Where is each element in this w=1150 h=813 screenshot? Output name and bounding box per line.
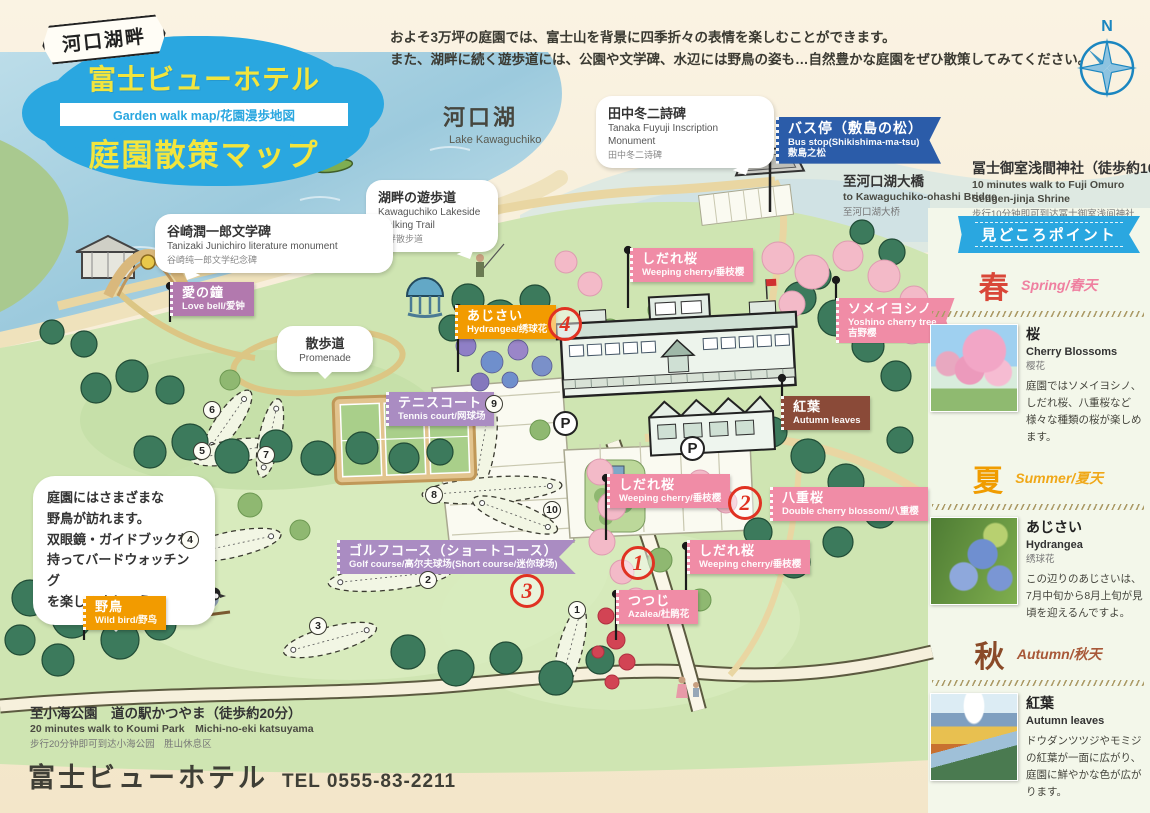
hotel-title: 富士ビューホテル [38,58,370,98]
bubble-promenade-jp: 散歩道 [289,333,361,352]
label-weeping-cherry-low-jp: しだれ桜 [699,543,801,559]
summer-photo-hydrangea [930,517,1018,605]
golf-hole-2: 2 [419,571,437,589]
note-koumi-jp: 至小海公園 道の駅かつやま（徒歩約20分） [30,702,314,722]
highlights-banner-text: 見どころポイント [975,222,1123,247]
intro-description: およそ3万坪の庭園では、富士山を背景に四季折々の表情を楽しむことができます。 ま… [390,27,1091,72]
bubble-promenade: 散歩道 Promenade [277,326,373,372]
bubble-tanaka-cn: 田中冬二诗碑 [608,148,762,161]
label-hydrangea-sub: Hydrangea/绣球花 [467,324,547,335]
season-autumn-header: 秋 Autumn/秋天 [930,632,1146,676]
label-weeping-cherry-top-jp: しだれ桜 [642,251,744,267]
label-bus-stop-en: Bus stop(Shikishima-ma-tsu) [788,137,923,148]
hotel-phone: TEL 0555-83-2211 [282,771,456,793]
label-tennis-sub: Tennis court/网球场 [398,411,485,422]
summer-heading-jp: あじさい [1026,517,1146,537]
spring-heading-en: Cherry Blossoms [1026,346,1146,358]
autumn-photo-foliage [930,693,1018,781]
label-tennis-jp: テニスコート [398,395,485,411]
season-autumn: 秋 Autumn/秋天 紅葉 Autumn leaves ドウダンツツジやモミジ… [930,632,1146,801]
lake-name: 河口湖 Lake Kawaguchiko [443,100,541,146]
highlights-banner: 見どころポイント [958,216,1140,253]
label-love-bell-jp: 愛の鐘 [182,285,245,301]
season-spring-header: 春 Spring/春天 [930,263,1146,307]
bubble-lakeside-cn: 湖畔散步道 [378,232,486,245]
label-wild-bird: 野鳥 Wild bird/野鸟 [83,596,166,630]
spot-marker-1: 1 [621,546,655,580]
autumn-body: ドウダンツツジやモミジの紅葉が一面に広がり、庭園に鮮やかな色が広がります。 [1026,733,1146,801]
intro-line-2: また、湖畔に続く遊歩道には、公園や文学碑、水辺には野鳥の姿も…自然豊かな庭園をぜ… [390,49,1091,71]
parking-icon-south: P [680,436,705,461]
label-bus-stop: バス停（敷島の松） Bus stop(Shikishima-ma-tsu) 敷島… [776,117,941,164]
label-golf-jp: ゴルフコース（ショートコース） [349,543,558,559]
label-weeping-cherry-mid-sub: Weeping cherry/垂枝樱 [619,493,721,504]
golf-hole-6: 6 [203,401,221,419]
label-double-cherry-jp: 八重桜 [782,490,919,506]
label-weeping-cherry-mid-jp: しだれ桜 [619,477,721,493]
label-golf-sub: Golf course/高尔夫球场(Short course/迷你球场) [349,559,558,570]
note-koumi-en: 20 minutes walk to Koumi Park Michi-no-e… [30,722,314,736]
golf-hole-9: 9 [485,395,503,413]
note-koumi: 至小海公園 道の駅かつやま（徒歩約20分） 20 minutes walk to… [30,702,314,750]
highlights-sidebar: 見どころポイント 春 Spring/春天 桜 Cherry Blossoms 樱… [930,216,1146,813]
label-autumn-leaves-sub: Autumn leaves [793,415,861,426]
divider [932,680,1144,686]
intro-line-1: およそ3万坪の庭園では、富士山を背景に四季折々の表情を楽しむことができます。 [390,27,1091,49]
label-weeping-cherry-mid: しだれ桜 Weeping cherry/垂枝樱 [607,474,730,508]
divider [932,311,1144,317]
summer-body: この辺りのあじさいは、7月中旬から8月上旬が見頃を迎えるんですよ。 [1026,571,1146,622]
bubble-tanizaki-monument: 谷崎潤一郎文学碑 Tanizaki Junichiro literature m… [155,214,393,273]
note-shrine-jp: 冨士御室浅間神社（徒歩約10分） [972,158,1148,178]
spring-photo-cherry-blossoms [930,324,1018,412]
season-spring: 春 Spring/春天 桜 Cherry Blossoms 樱花 庭園ではソメイ… [930,263,1146,446]
bubble-tanizaki-en: Tanizaki Junichiro literature monument [167,240,381,253]
golf-hole-8: 8 [425,486,443,504]
bubble-tanizaki-jp: 谷崎潤一郎文学碑 [167,221,381,240]
season-spring-kanji: 春 [979,272,1009,305]
garden-walk-map: 河口湖畔 富士ビューホテル Garden walk map/花園漫歩地図 庭園散… [0,0,1150,813]
season-spring-label: Spring/春天 [1021,277,1097,293]
compass-rose: N [1072,18,1142,105]
season-summer-header: 夏 Summer/夏天 [930,456,1146,500]
label-golf-course: ゴルフコース（ショートコース） Golf course/高尔夫球场(Short … [337,540,576,574]
season-summer: 夏 Summer/夏天 あじさい Hydrangea 绣球花 この辺りのあじさい… [930,456,1146,622]
autumn-heading-en: Autumn leaves [1026,715,1146,727]
map-title: 庭園散策マップ [38,130,370,175]
label-wild-bird-sub: Wild bird/野鸟 [95,615,157,626]
label-love-bell: 愛の鐘 Love bell/爱钟 [170,282,254,316]
spring-heading-jp: 桜 [1026,324,1146,344]
golf-hole-1: 1 [568,601,586,619]
label-weeping-cherry-low-sub: Weeping cherry/垂枝樱 [699,559,801,570]
note-shrine: 冨士御室浅間神社（徒歩約10分） 10 minutes walk to Fuji… [972,158,1148,220]
label-yoshino-en: Yoshino cherry tree [848,317,937,328]
label-azalea-sub: Azalea/杜鹃花 [628,609,689,620]
label-double-cherry: 八重桜 Double cherry blossom/八重樱 [770,487,928,521]
bubble-tanaka-en: Tanaka Fuyuji Inscription Monument [608,122,762,148]
parking-icon-west: P [553,411,578,436]
label-double-cherry-sub: Double cherry blossom/八重樱 [782,506,919,517]
spot-marker-2: 2 [728,486,762,520]
label-yoshino-jp: ソメイヨシノ [848,301,937,317]
season-autumn-label: Autumn/秋天 [1017,646,1102,662]
divider [932,504,1144,510]
note-shrine-en: 10 minutes walk to Fuji Omuro Sengen-jin… [972,178,1148,206]
label-tennis-court: テニスコート Tennis court/网球场 [386,392,494,426]
golf-hole-10: 10 [543,501,561,519]
spot-marker-3: 3 [510,574,544,608]
bubble-tanizaki-cn: 谷崎纯一郎文学纪念碑 [167,253,381,266]
season-summer-label: Summer/夏天 [1015,470,1103,486]
spring-body: 庭園ではソメイヨシノ、しだれ桜、八重桜など様々な種類の桜が楽しめます。 [1026,378,1146,446]
label-wild-bird-jp: 野鳥 [95,599,157,615]
label-weeping-cherry-low: しだれ桜 Weeping cherry/垂枝樱 [687,540,810,574]
label-bus-stop-cn: 敷島之松 [788,148,923,159]
lake-name-en: Lake Kawaguchiko [443,134,541,146]
bubble-promenade-en: Promenade [289,352,361,365]
golf-hole-5: 5 [193,442,211,460]
footer: 富士ビューホテル TEL 0555-83-2211 [28,756,456,795]
season-autumn-kanji: 秋 [974,641,1004,674]
label-autumn-leaves-jp: 紅葉 [793,399,861,415]
label-weeping-cherry-top-sub: Weeping cherry/垂枝樱 [642,267,744,278]
bubble-tanaka-monument: 田中冬二詩碑 Tanaka Fuyuji Inscription Monumen… [596,96,774,168]
wild-bird-note-text: 庭園にはさまざまな 野鳥が訪れます。 双眼鏡・ガイドブックを 持ってバードウォッ… [47,490,190,609]
compass-icon [1075,36,1139,100]
label-love-bell-sub: Love bell/爱钟 [182,301,245,312]
golf-hole-7: 7 [257,446,275,464]
season-summer-kanji: 夏 [973,465,1003,498]
compass-north-label: N [1072,18,1142,36]
label-weeping-cherry-top: しだれ桜 Weeping cherry/垂枝樱 [630,248,753,282]
label-autumn-leaves: 紅葉 Autumn leaves [781,396,870,430]
label-bus-stop-jp: バス停（敷島の松） [788,120,923,137]
hotel-logo: 富士ビューホテル [28,756,268,795]
golf-hole-3: 3 [309,617,327,635]
note-koumi-cn: 步行20分钟即可到达小海公园 胜山休息区 [30,736,314,750]
bubble-lakeside-en: Kawaguchiko Lakeside Walking Trail [378,206,486,232]
map-subtitle: Garden walk map/花園漫歩地図 [60,103,348,126]
summer-heading-en: Hydrangea [1026,539,1146,551]
spring-heading-cn: 樱花 [1026,358,1146,372]
golf-hole-4: 4 [181,531,199,549]
autumn-heading-jp: 紅葉 [1026,693,1146,713]
label-azalea: つつじ Azalea/杜鹃花 [616,590,698,624]
lake-name-jp: 河口湖 [443,100,541,132]
label-azalea-jp: つつじ [628,593,689,609]
summer-heading-cn: 绣球花 [1026,551,1146,565]
spot-marker-4: 4 [548,307,582,341]
label-yoshino-cn: 吉野樱 [848,328,937,339]
bubble-tanaka-jp: 田中冬二詩碑 [608,103,762,122]
label-hydrangea: あじさい Hydrangea/绣球花 [455,305,556,339]
bubble-lakeside-jp: 湖畔の遊歩道 [378,187,486,206]
label-hydrangea-jp: あじさい [467,308,547,324]
